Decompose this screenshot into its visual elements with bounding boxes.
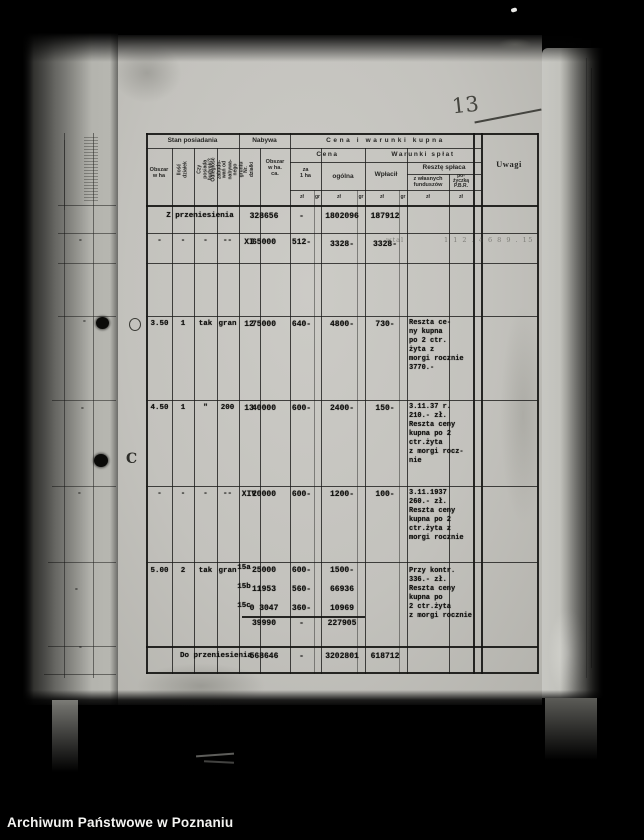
unit-gr: gr xyxy=(357,194,365,200)
ledger-page: 13 C xyxy=(118,35,542,705)
book-page-edge xyxy=(542,48,604,698)
parcel-plot-area: 25000 xyxy=(241,566,287,575)
carry-out-per-ha: - xyxy=(287,652,316,661)
page-stain xyxy=(548,608,588,698)
header-cena-i-warunki-kupna: Cena i warunki kupna xyxy=(290,137,481,144)
page-curl-highlight xyxy=(52,700,78,772)
unit-gr: gr xyxy=(314,194,321,200)
row-15-sum-total: 227905 xyxy=(322,619,362,628)
grid-line xyxy=(146,646,538,648)
column-odleglosc-zabudowan: Odległość zabudo- wań od nabywa- nego gr… xyxy=(217,149,239,189)
row-12-area: 3.50 xyxy=(147,320,172,328)
row-13-note: 3.11.37 r. 210.- zł. Reszta ceny kupna p… xyxy=(409,403,481,466)
grid-line xyxy=(146,233,538,234)
illegible-vertical-text xyxy=(84,137,98,203)
parcel-total: 1500- xyxy=(322,566,362,575)
row-xiv-plot-area: 20000 xyxy=(241,490,287,499)
pencil-scribble: 1 1 2 . 4 6 8 9 . 15 xyxy=(444,236,538,244)
handwritten-letter-mark: C xyxy=(126,451,137,467)
ledger-dash: - xyxy=(74,585,79,594)
grid-line xyxy=(58,233,116,234)
unit-zl: zł xyxy=(407,194,449,200)
scratch-mark xyxy=(204,760,234,763)
row-xi-plots: - xyxy=(173,237,193,245)
header-stan-posiadania: Stan posiadania xyxy=(146,137,239,144)
column-pozyczka-pbr: po- życzką P.B.R. xyxy=(449,174,473,190)
carry-in-total: 1802096 xyxy=(322,212,362,221)
unit-zl: zł xyxy=(449,194,473,200)
header-nabywa: Nabywa xyxy=(239,137,290,144)
parcel-plot-area: 11953 xyxy=(241,585,287,594)
parcel-total: 10969 xyxy=(322,604,362,613)
grid-line xyxy=(58,316,116,317)
ledger-dash: - xyxy=(78,643,83,652)
archival-scan-photo: - - - - - - 13 C xyxy=(0,0,644,840)
row-15-buildings: tak xyxy=(195,567,216,575)
row-12-distance: gran xyxy=(216,320,239,328)
row-15-sum-per-ha: - xyxy=(287,619,316,628)
row-xi-area: - xyxy=(147,237,172,245)
carry-in-paid: 187912 xyxy=(366,212,404,221)
grid-line xyxy=(58,263,116,264)
unit-zl: zł xyxy=(321,194,357,200)
parcel-total: 66936 xyxy=(322,585,362,594)
column-ilosc-dzialek: Ilość działek xyxy=(172,149,194,189)
sum-underline xyxy=(242,616,365,618)
page-edge-fade xyxy=(545,698,597,760)
column-za-1-ha: za 1 ha xyxy=(290,167,321,179)
page-edge-line xyxy=(591,68,592,668)
row-13-distance: 200 xyxy=(216,404,239,412)
grid-line xyxy=(146,133,538,135)
row-12-buildings: tak xyxy=(195,320,216,328)
parcel-per-ha: 360- xyxy=(287,604,316,613)
grid-line xyxy=(64,133,65,678)
grid-line xyxy=(481,133,483,674)
row-xi-plot-area: 65000 xyxy=(241,238,287,247)
carry-out-total: 3202801 xyxy=(322,652,362,661)
carry-out-plot-area: 568646 xyxy=(241,652,287,661)
handwritten-stroke xyxy=(474,109,541,124)
row-13-plot-area: 40000 xyxy=(241,404,287,413)
column-ogolna: ogólna xyxy=(321,173,365,180)
grid-line xyxy=(146,486,538,487)
grid-line xyxy=(52,486,116,487)
grid-line xyxy=(146,316,538,317)
row-xiv-area: - xyxy=(147,490,172,498)
row-13-per-ha: 600- xyxy=(287,404,316,413)
ledger-dash: - xyxy=(78,236,83,245)
row-xiv-per-ha: 600- xyxy=(287,490,316,499)
carry-in-label: Z przeniesienia xyxy=(156,212,244,220)
row-xi-distance: -- xyxy=(216,237,239,245)
grid-line xyxy=(290,162,481,163)
page-edge-line xyxy=(586,58,587,678)
parcel-per-ha: 600- xyxy=(287,566,316,575)
row-xi-total: 3328- xyxy=(322,240,362,249)
unit-zl: zł xyxy=(365,194,399,200)
carry-out-paid: 618712 xyxy=(366,652,404,661)
watermark-bar: Archiwum Państwowe w Poznaniu xyxy=(0,806,644,840)
row-13-area: 4.50 xyxy=(147,404,172,412)
row-xiv-total: 1200- xyxy=(322,490,362,499)
ledger-dash: - xyxy=(77,489,82,498)
grid-line xyxy=(52,400,116,401)
grid-line xyxy=(407,148,408,674)
grid-line xyxy=(146,205,538,207)
row-12-per-ha: 640- xyxy=(287,320,316,329)
column-wplacil: Wpłacił xyxy=(365,171,407,178)
row-12-plot-area: 75000 xyxy=(241,320,287,329)
film-speck xyxy=(511,7,518,12)
ledger-dash: - xyxy=(82,317,87,326)
header-reszte-splaca: Resztę spłaca xyxy=(407,164,481,171)
grid-line xyxy=(146,672,538,674)
unit-zl: zł xyxy=(290,194,314,200)
facing-page-edge: - - - - - - xyxy=(22,33,118,705)
row-12-note: Reszta ce- ny kupna po 2 ctr. żyta z mor… xyxy=(409,319,479,373)
page-stain xyxy=(112,43,182,103)
grid-line xyxy=(93,133,94,678)
ledger-dash: - xyxy=(80,404,85,413)
column-obszar-w-ha: Obszar w ha xyxy=(146,167,172,179)
row-12-total: 4800- xyxy=(322,320,362,329)
row-13-paid: 150- xyxy=(366,404,404,413)
parcel-plot-area: 0 3047 xyxy=(241,604,287,613)
pencil-scribble: wtal xyxy=(386,236,404,244)
handwritten-page-number: 13 xyxy=(451,92,480,119)
carry-in-plot-area: 328656 xyxy=(241,212,287,221)
punch-hole xyxy=(94,454,108,467)
row-xi-per-ha: 512- xyxy=(287,238,316,247)
row-15-plots: 2 xyxy=(173,567,193,575)
row-xiv-distance: -- xyxy=(216,490,239,498)
unit-gr: gr xyxy=(399,194,407,200)
scratch-mark xyxy=(196,753,234,757)
grid-line xyxy=(58,205,116,206)
ledger-table: Stan posiadania Nabywa Cena i warunki ku… xyxy=(146,133,539,674)
carry-in-per-ha: - xyxy=(287,212,316,221)
row-xiv-paid: 100- xyxy=(366,490,404,499)
grid-line xyxy=(48,562,116,563)
grid-line xyxy=(146,263,538,264)
row-12-plots: 1 xyxy=(173,320,193,328)
row-15-note: Przy kontr. 336.- zł. Reszta ceny kupna … xyxy=(409,567,481,621)
row-13-total: 2400- xyxy=(322,404,362,413)
row-13-buildings: " xyxy=(195,404,216,412)
row-xiv-buildings: - xyxy=(195,490,216,498)
grid-line xyxy=(64,140,65,210)
row-xiv-note: 3.11.1937 260.- zł. Reszta ceny kupna po… xyxy=(409,489,481,543)
archive-watermark: Archiwum Państwowe w Poznaniu xyxy=(7,806,233,839)
row-13-plots: 1 xyxy=(173,404,193,412)
header-cena: Cena xyxy=(290,151,365,158)
column-z-wlasnych-funduszow: z własnych funduszów xyxy=(407,176,449,188)
row-xiv-plots: - xyxy=(173,490,193,498)
handwritten-circle-mark xyxy=(129,318,141,331)
punch-hole xyxy=(96,317,109,329)
parcel-per-ha: 560- xyxy=(287,585,316,594)
column-obszar-w-ha-ca: Obszar w ha. ca. xyxy=(260,159,290,177)
grid-line xyxy=(537,133,539,674)
grid-line xyxy=(44,674,116,675)
grid-line xyxy=(146,400,538,401)
grid-line xyxy=(290,190,481,191)
row-12-paid: 730- xyxy=(366,320,404,329)
header-warunki-splat: Warunki spłat xyxy=(365,151,481,158)
column-nr-dzialki: Nr. działki xyxy=(239,149,260,189)
header-uwagi: Uwagi xyxy=(481,161,537,168)
row-15-area: 5.00 xyxy=(147,567,172,575)
row-xi-buildings: - xyxy=(195,237,216,245)
grid-line xyxy=(146,562,538,563)
row-15-sum-plot-area: 39990 xyxy=(241,619,287,628)
faint-pencil-smudge xyxy=(498,38,532,51)
